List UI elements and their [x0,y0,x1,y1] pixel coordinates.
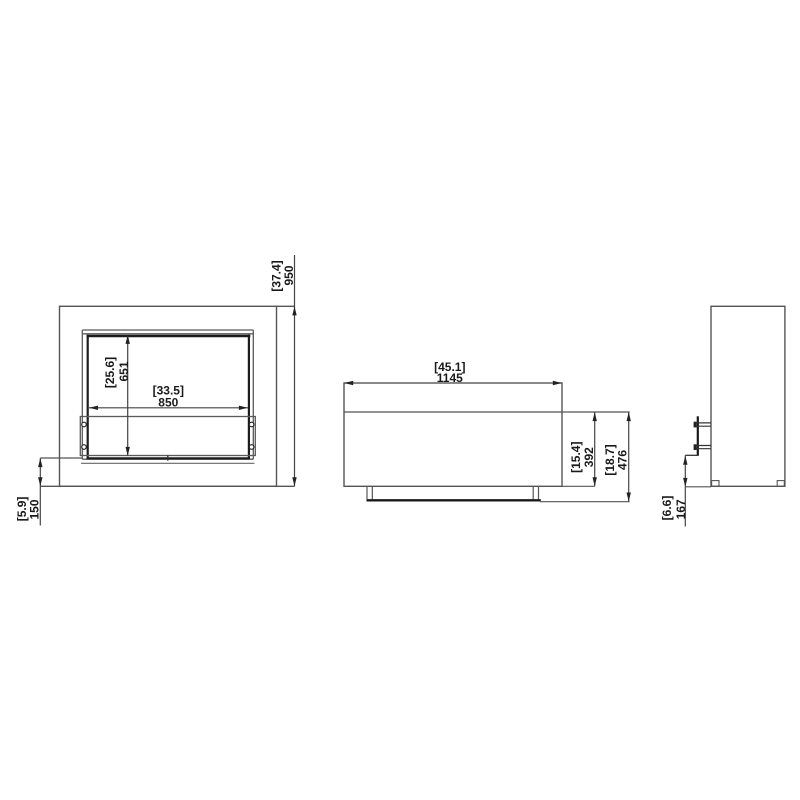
svg-text:651: 651 [117,361,131,381]
svg-text:476: 476 [616,450,630,470]
svg-text:[6.6]: [6.6] [660,496,674,521]
svg-text:1145: 1145 [437,371,463,385]
svg-text:850: 850 [158,395,178,409]
svg-text:392: 392 [582,447,596,467]
svg-text:950: 950 [282,265,296,285]
svg-text:[25.6]: [25.6] [103,357,117,388]
svg-text:[37.4]: [37.4] [269,260,283,291]
svg-text:[15.4]: [15.4] [569,442,583,473]
svg-text:150: 150 [28,499,42,519]
svg-text:167: 167 [674,499,688,519]
